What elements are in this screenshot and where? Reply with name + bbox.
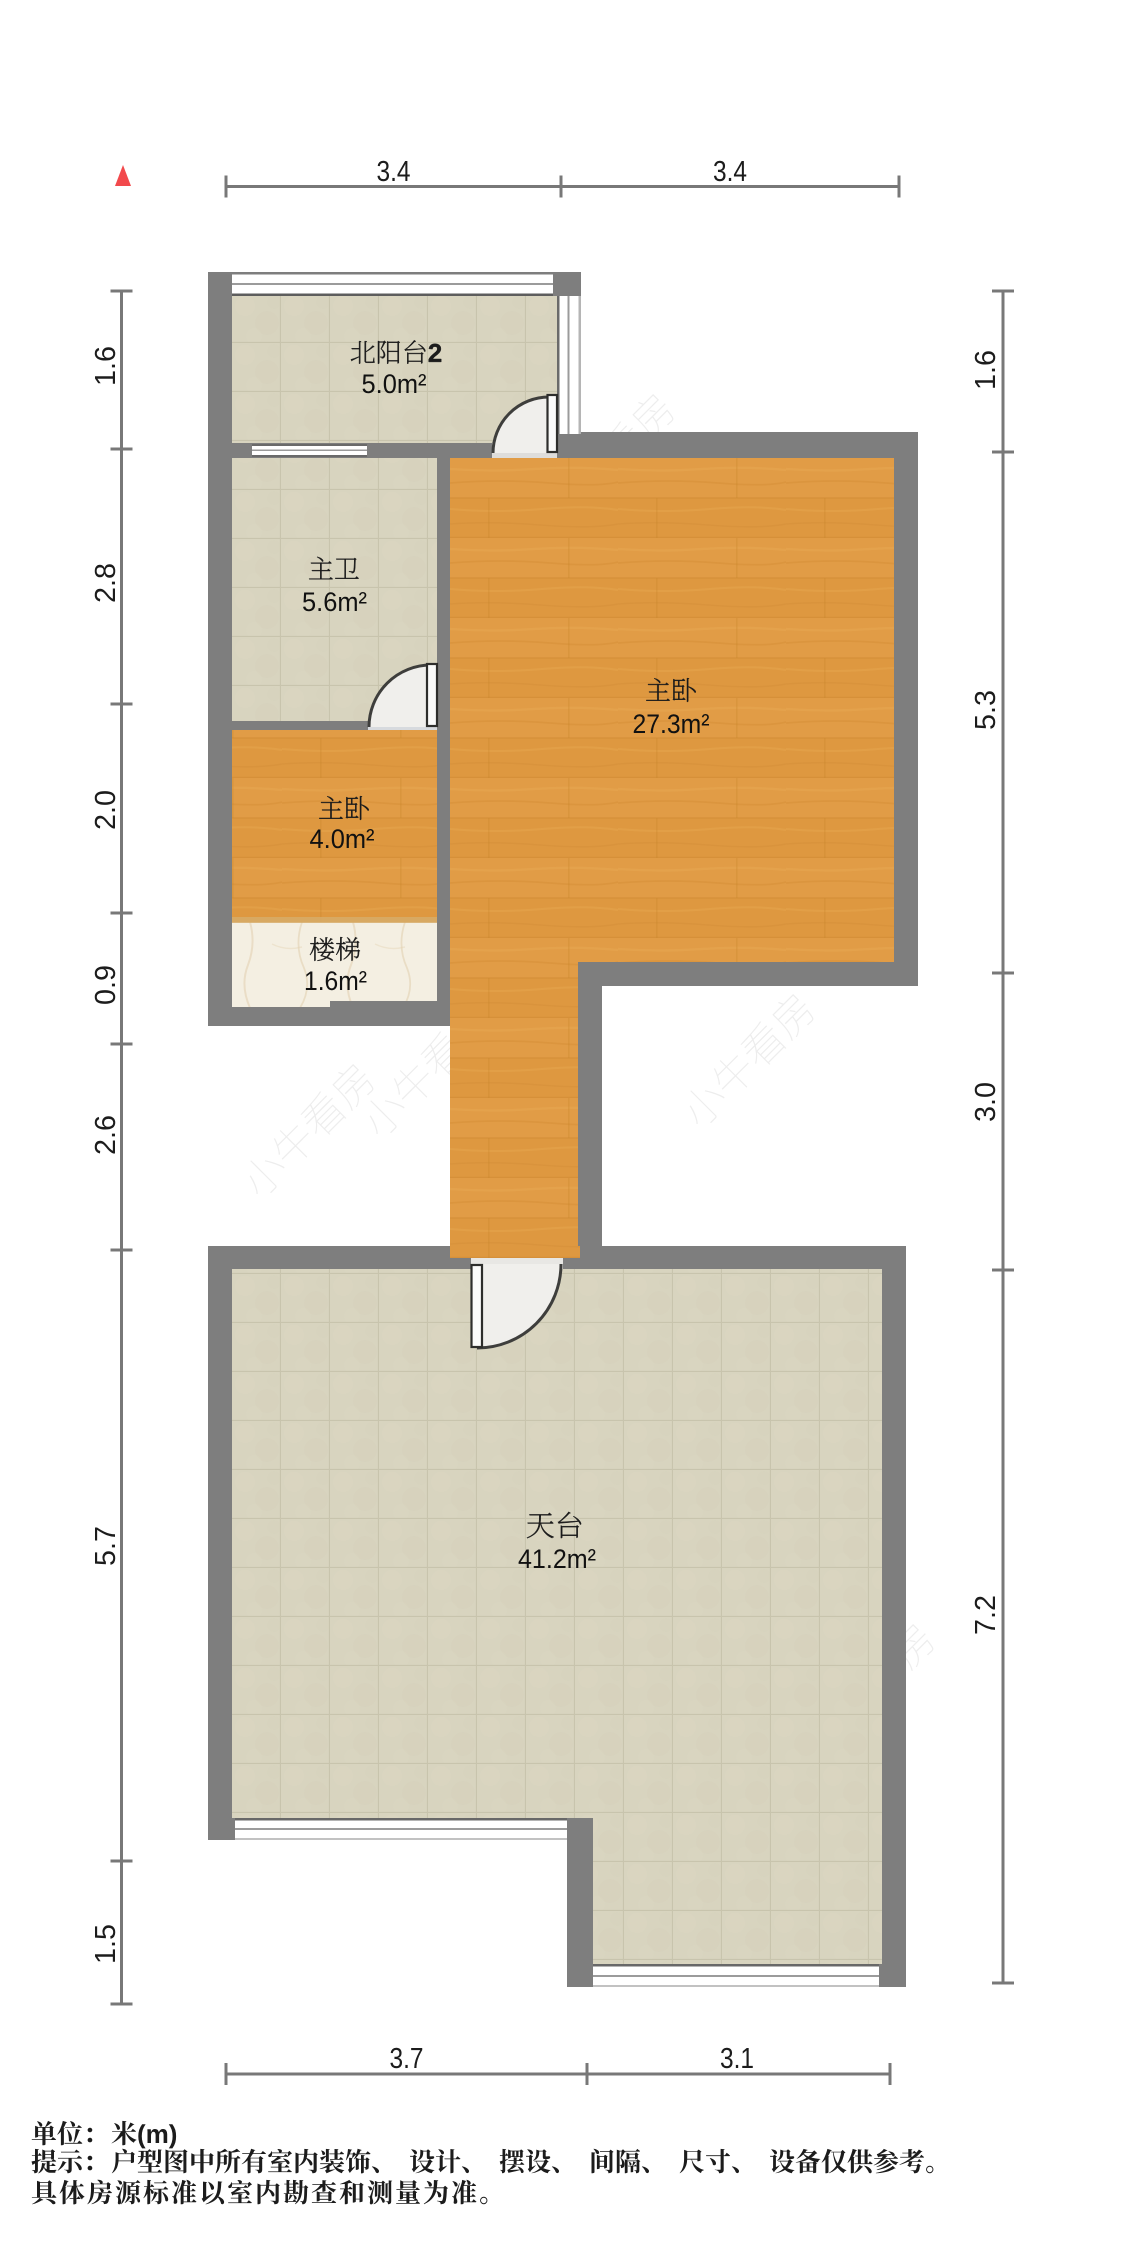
svg-text:5.3: 5.3 — [970, 690, 1002, 730]
svg-text:1.6: 1.6 — [970, 350, 1002, 390]
svg-text:3.7: 3.7 — [390, 2043, 424, 2075]
svg-text:2.6: 2.6 — [90, 1115, 122, 1155]
svg-text:1.6: 1.6 — [90, 346, 122, 386]
svg-text:2.0: 2.0 — [90, 790, 122, 830]
svg-text:3.4: 3.4 — [377, 156, 411, 188]
svg-text:5.7: 5.7 — [90, 1526, 122, 1566]
svg-text:7.2: 7.2 — [970, 1595, 1002, 1635]
svg-text:3.4: 3.4 — [713, 156, 747, 188]
svg-text:27.3m²: 27.3m² — [633, 709, 710, 739]
svg-text:5.0m²: 5.0m² — [362, 369, 427, 399]
svg-text:1.5: 1.5 — [90, 1924, 122, 1964]
svg-text:0.9: 0.9 — [90, 965, 122, 1005]
svg-text:5.6m²: 5.6m² — [302, 587, 367, 617]
svg-text:3.0: 3.0 — [970, 1082, 1002, 1122]
svg-text:1.6m²: 1.6m² — [304, 966, 367, 996]
svg-text:3.1: 3.1 — [720, 2043, 754, 2075]
svg-text:41.2m²: 41.2m² — [518, 1544, 596, 1574]
svg-text:4.0m²: 4.0m² — [310, 824, 375, 854]
svg-text:2.8: 2.8 — [90, 563, 122, 603]
